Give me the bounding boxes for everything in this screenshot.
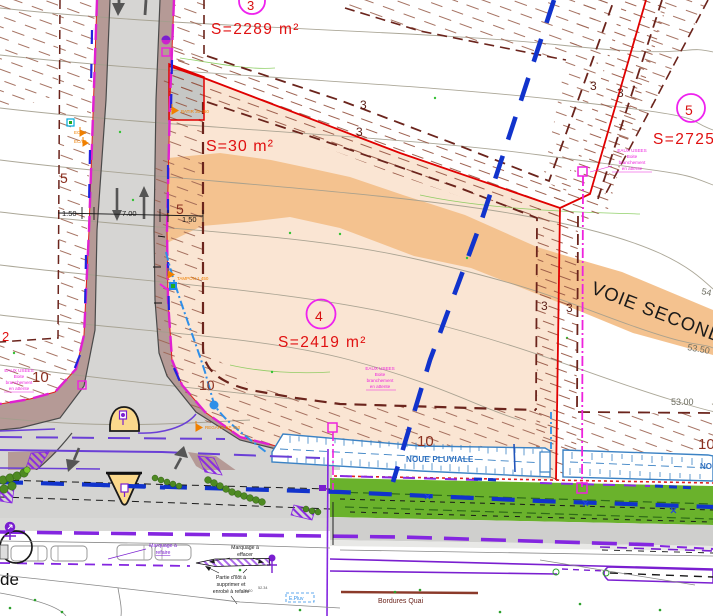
svg-text:Boite: Boite	[627, 154, 638, 159]
svg-text:en attente: en attente	[370, 384, 391, 389]
svg-text:10: 10	[32, 369, 49, 386]
svg-text:52.34: 52.34	[258, 586, 268, 590]
svg-text:10: 10	[199, 377, 215, 393]
svg-text:branchement: branchement	[6, 380, 34, 385]
svg-text:10: 10	[417, 433, 434, 450]
svg-text:refaire: refaire	[156, 550, 171, 556]
svg-text:S=2289 m²: S=2289 m²	[211, 21, 300, 38]
svg-text:4: 4	[315, 308, 323, 324]
svg-text:effacer: effacer	[237, 552, 253, 558]
svg-text:3: 3	[360, 98, 367, 112]
svg-text:1.50: 1.50	[62, 209, 77, 218]
svg-text:5: 5	[685, 102, 693, 118]
svg-text:REGARD EP 450: REGARD EP 450	[205, 425, 241, 430]
svg-text:3: 3	[566, 301, 573, 315]
svg-text:3: 3	[590, 79, 597, 93]
svg-text:Bordures Quai: Bordures Quai	[378, 598, 424, 605]
svg-text:S=2725 m²: S=2725 m²	[653, 131, 713, 148]
svg-text:S=2419 m²: S=2419 m²	[278, 334, 367, 351]
svg-text:Boite: Boite	[14, 374, 25, 379]
svg-text:BATIR 30 450: BATIR 30 450	[181, 109, 209, 114]
svg-text:10: 10	[698, 436, 713, 453]
svg-text:EAUX USEES: EAUX USEES	[4, 368, 33, 373]
svg-text:Partie d'îlôt à: Partie d'îlôt à	[216, 575, 246, 581]
svg-text:3: 3	[617, 86, 624, 100]
svg-text:53.00: 53.00	[671, 397, 694, 407]
svg-text:NOU: NOU	[700, 462, 713, 471]
svg-text:EAUX USEES: EAUX USEES	[365, 366, 394, 371]
svg-text:supprimer et: supprimer et	[217, 582, 246, 588]
svg-text:54: 54	[701, 286, 713, 298]
svg-text:EC/90: EC/90	[74, 139, 87, 144]
svg-text:en attente: en attente	[622, 166, 643, 171]
svg-text:3: 3	[247, 0, 254, 13]
svg-text:S=30 m²: S=30 m²	[206, 138, 274, 155]
svg-text:Boite: Boite	[375, 372, 386, 377]
svg-text:2: 2	[2, 329, 9, 344]
svg-text:en attente: en attente	[9, 386, 30, 391]
svg-text:7.00: 7.00	[122, 209, 137, 218]
svg-text:EC/20: EC/20	[74, 130, 87, 135]
svg-text:NOUE PLUVIALE: NOUE PLUVIALE	[406, 455, 474, 464]
svg-text:1.50: 1.50	[182, 215, 197, 224]
svg-text:3: 3	[356, 125, 363, 139]
svg-text:10.20: 10.20	[243, 589, 253, 593]
svg-text:5: 5	[176, 201, 184, 217]
svg-text:branchement: branchement	[367, 378, 395, 383]
svg-text:de: de	[0, 570, 19, 589]
svg-text:TAMPON 1 450: TAMPON 1 450	[177, 276, 209, 281]
svg-text:5: 5	[60, 170, 68, 186]
svg-text:branchement: branchement	[619, 160, 647, 165]
svg-text:3: 3	[541, 299, 548, 313]
svg-text:E.Pluv: E.Pluv	[289, 596, 304, 602]
svg-text:EAUX USEES: EAUX USEES	[617, 148, 646, 153]
